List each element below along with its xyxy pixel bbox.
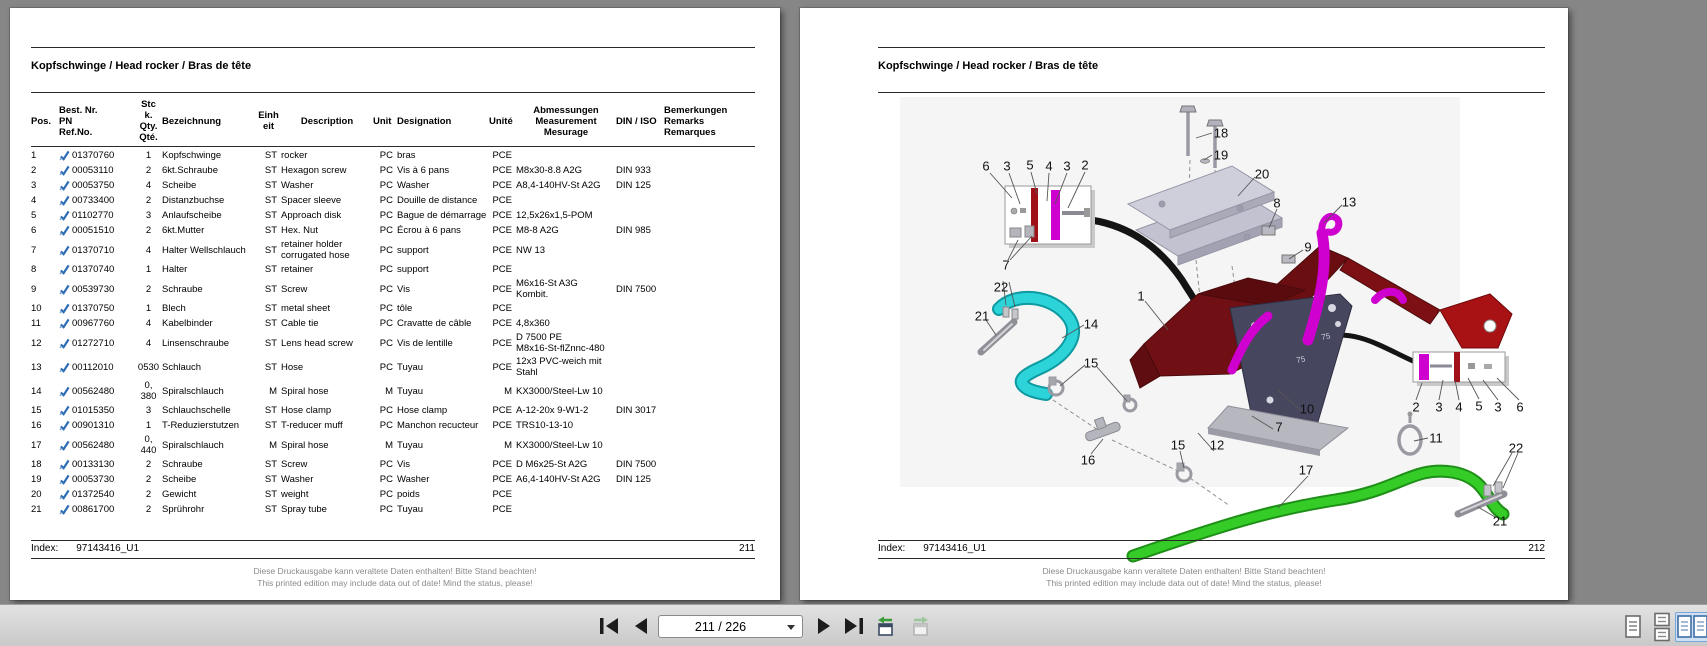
page-number-input[interactable] (658, 615, 803, 638)
cell-qty: 2 (135, 489, 162, 500)
cell-part-number: 01372540 (59, 489, 135, 500)
diagram-callout: 7 (1002, 258, 1009, 273)
header-name-de: Bezeichnung (162, 116, 256, 127)
diagram-callout: 18 (1214, 126, 1228, 141)
disclaimer-de: Diese Druckausgabe kann veraltete Daten … (800, 565, 1568, 577)
cell-name-en: retainer holder corrugated hose (281, 239, 373, 261)
cell-pos: 14 (31, 386, 59, 397)
cell-part-number: 01370710 (59, 245, 135, 256)
cell-name-de: Anlaufscheibe (162, 210, 256, 221)
table-row: 7 01370710 4 Halter Wellschlauch ST reta… (31, 238, 755, 262)
table-row: 20 01372540 2 Gewicht ST weight PC poids… (31, 487, 755, 502)
cell-unit-en: PC (373, 338, 397, 349)
cell-name-fr: Hose clamp (397, 405, 489, 416)
cell-part-number: 00133130 (59, 459, 135, 470)
cell-part-number: 00901310 (59, 420, 135, 431)
pen-annotation-icon[interactable] (59, 180, 70, 191)
cell-qty: 1 (135, 420, 162, 431)
cell-part-number: 01370740 (59, 264, 135, 275)
cell-unit-de: ST (256, 180, 281, 191)
cell-qty: 3 (135, 210, 162, 221)
pen-annotation-icon[interactable] (59, 405, 70, 416)
cell-name-de: Halter (162, 264, 256, 275)
cell-part-number: 01015350 (59, 405, 135, 416)
cell-qty: 4 (135, 338, 162, 349)
right-page: Kopfschwinge / Head rocker / Bras de têt… (800, 8, 1568, 600)
diagram-callout: 2 (1081, 158, 1088, 173)
table-row: 11 00967760 4 Kabelbinder ST Cable tie P… (31, 316, 755, 331)
pen-annotation-icon[interactable] (59, 338, 70, 349)
cell-name-fr: Tuyau (397, 504, 489, 515)
cell-unit-en: PC (373, 225, 397, 236)
cell-name-en: Approach disk (281, 210, 373, 221)
cell-name-de: Sprührohr (162, 504, 256, 515)
header-pn: Best. Nr. PN Ref.No. (59, 105, 135, 138)
cell-unit-en: PC (373, 180, 397, 191)
cell-name-en: Cable tie (281, 318, 373, 329)
previous-view-button[interactable] (872, 613, 898, 639)
cell-pos: 12 (31, 338, 59, 349)
cell-pos: 9 (31, 284, 59, 295)
cell-name-fr: Vis à 6 pans (397, 165, 489, 176)
next-page-button[interactable] (811, 613, 837, 639)
cell-name-fr: Douille de distance (397, 195, 489, 206)
table-row: 21 00861700 2 Sprührohr ST Spray tube PC… (31, 502, 755, 517)
cell-unit-en: M (373, 440, 397, 451)
diagram-callout: 21 (975, 309, 989, 324)
cell-name-fr: Washer (397, 180, 489, 191)
cell-name-en: Spiral hose (281, 386, 373, 397)
previous-view-icon (872, 613, 898, 639)
cell-part-number: 00112010 (59, 362, 135, 373)
diagram-callout: 12 (1210, 438, 1224, 453)
cell-unit-de: ST (256, 165, 281, 176)
diagram-callout: 20 (1255, 167, 1269, 182)
pen-annotation-icon[interactable] (59, 420, 70, 431)
disclaimer-en: This printed edition may include data ou… (10, 577, 780, 589)
cell-unit-de: ST (256, 489, 281, 500)
cell-unit-en: PC (373, 165, 397, 176)
previous-page-icon (628, 613, 654, 639)
cell-unit-de: M (256, 440, 281, 451)
left-page: Kopfschwinge / Head rocker / Bras de têt… (10, 8, 780, 600)
header-qty: Stc k. Qty. Qté. (135, 99, 162, 143)
cell-part-number: 01272710 (59, 338, 135, 349)
cell-dim: A6,4-140HV-St A2G (516, 474, 616, 485)
first-page-button[interactable] (596, 613, 622, 639)
cell-pos: 5 (31, 210, 59, 221)
cell-unit-de: ST (256, 405, 281, 416)
cell-unit-de: ST (256, 195, 281, 206)
cell-name-de: Distanzbuchse (162, 195, 256, 206)
cell-name-en: Spacer sleeve (281, 195, 373, 206)
cell-name-fr: Tuyau (397, 440, 489, 451)
cell-name-de: Scheibe (162, 474, 256, 485)
viewer-toolbar (0, 604, 1707, 646)
cell-unit-de: ST (256, 504, 281, 515)
cell-name-fr: tôle (397, 303, 489, 314)
table-row: 14 00562480 0, 380 Spiralschlauch M Spir… (31, 379, 755, 403)
cell-name-en: rocker (281, 150, 373, 161)
cell-name-en: Screw (281, 284, 373, 295)
cell-dim: D M6x25-St A2G (516, 459, 616, 470)
cell-unit-de: ST (256, 362, 281, 373)
cell-name-en: T-reducer muff (281, 420, 373, 431)
cell-unit-de: ST (256, 225, 281, 236)
pen-annotation-icon[interactable] (59, 195, 70, 206)
table-header-row: Pos. Best. Nr. PN Ref.No. Stc k. Qty. Qt… (31, 98, 755, 147)
pen-annotation-icon[interactable] (59, 440, 70, 451)
diagram-callout: 3 (1435, 400, 1442, 415)
cell-dim: M6x16-St A3G Kombit. (516, 278, 616, 300)
part-number: 00967760 (72, 318, 114, 329)
cell-unit-en: PC (373, 489, 397, 500)
header-dim: Abmessungen Measurement Mesurage (516, 105, 616, 138)
diagram-callout: 4 (1455, 400, 1462, 415)
cell-unit-fr: PCE (489, 362, 516, 373)
part-number: 00562480 (72, 440, 114, 451)
part-number: 00861700 (72, 504, 114, 515)
cell-unit-de: ST (256, 245, 281, 256)
cell-qty: 4 (135, 180, 162, 191)
cell-din: DIN 3017 (616, 405, 664, 416)
diagram-callout: 15 (1084, 356, 1098, 371)
cell-part-number: 00053750 (59, 180, 135, 191)
part-number: 00053110 (72, 165, 114, 176)
cell-unit-fr: PCE (489, 489, 516, 500)
pen-annotation-icon[interactable] (59, 386, 70, 397)
diagram-callout: 5 (1475, 399, 1482, 414)
cell-name-de: Schlauchschelle (162, 405, 256, 416)
pen-annotation-icon[interactable] (59, 318, 70, 329)
cell-name-en: Spray tube (281, 504, 373, 515)
cell-part-number: 01102770 (59, 210, 135, 221)
pen-annotation-icon[interactable] (59, 362, 70, 373)
cell-name-en: Hose clamp (281, 405, 373, 416)
cell-pos: 4 (31, 195, 59, 206)
cell-name-fr: support (397, 245, 489, 256)
single-page-icon (1622, 613, 1644, 641)
cell-unit-de: M (256, 386, 281, 397)
pen-annotation-icon[interactable] (59, 165, 70, 176)
cell-dim: TRS10-13-10 (516, 420, 616, 431)
cell-name-de: Halter Wellschlauch (162, 245, 256, 256)
cell-unit-fr: PCE (489, 165, 516, 176)
cell-unit-de: ST (256, 303, 281, 314)
cell-name-de: Spiralschlauch (162, 386, 256, 397)
cell-unit-en: PC (373, 459, 397, 470)
disclaimer-de: Diese Druckausgabe kann veraltete Daten … (10, 565, 780, 577)
cell-name-en: Hex. Nut (281, 225, 373, 236)
part-number: 01372540 (72, 489, 114, 500)
cell-pos: 7 (31, 245, 59, 256)
cell-pos: 17 (31, 440, 59, 451)
pen-annotation-icon[interactable] (59, 459, 70, 470)
cell-name-de: 6kt.Mutter (162, 225, 256, 236)
cell-qty: 3 (135, 405, 162, 416)
diagram-callout: 17 (1299, 463, 1313, 478)
header-pos: Pos. (31, 116, 59, 127)
table-row: 19 00053730 2 Scheibe ST Washer PC Washe… (31, 472, 755, 487)
header-unit-en: Unit (373, 116, 397, 127)
page-number: 212 (1528, 543, 1545, 554)
cell-unit-fr: PCE (489, 504, 516, 515)
cell-name-fr: poids (397, 489, 489, 500)
cell-qty: 1 (135, 264, 162, 275)
cell-unit-en: PC (373, 420, 397, 431)
cell-unit-fr: M (489, 386, 516, 397)
cell-qty: 2 (135, 165, 162, 176)
cell-unit-fr: PCE (489, 150, 516, 161)
cell-dim: M8x30-8.8 A2G (516, 165, 616, 176)
cell-unit-de: ST (256, 474, 281, 485)
cell-pos: 13 (31, 362, 59, 373)
title-top-rule (31, 47, 755, 48)
cell-unit-en: PC (373, 284, 397, 295)
part-number: 01272710 (72, 338, 114, 349)
part-number: 01370750 (72, 303, 114, 314)
table-row: 3 00053750 4 Scheibe ST Washer PC Washer… (31, 178, 755, 193)
cell-pos: 21 (31, 504, 59, 515)
diagram-callout: 8 (1273, 196, 1280, 211)
cell-part-number: 00562480 (59, 440, 135, 451)
pen-annotation-icon[interactable] (59, 210, 70, 221)
cell-unit-fr: M (489, 440, 516, 451)
index-value: 97143416_U1 (76, 543, 139, 554)
next-view-button[interactable] (908, 613, 934, 639)
page-title: Kopfschwinge / Head rocker / Bras de têt… (31, 60, 251, 72)
cell-name-en: Screw (281, 459, 373, 470)
cell-pos: 1 (31, 150, 59, 161)
cell-qty: 1 (135, 150, 162, 161)
diagram-callout: 19 (1214, 148, 1228, 163)
cell-din: DIN 985 (616, 225, 664, 236)
header-remarks: Bemerkungen Remarks Remarques (664, 105, 755, 138)
diagram-callout: 22 (1509, 441, 1523, 456)
cell-pos: 10 (31, 303, 59, 314)
pen-annotation-icon[interactable] (59, 474, 70, 485)
part-number: 00112010 (72, 362, 114, 373)
part-number: 00733400 (72, 195, 114, 206)
cell-name-de: Spiralschlauch (162, 440, 256, 451)
continuous-view-button[interactable] (1649, 612, 1675, 642)
cell-dim: 12,5x26x1,5-POM (516, 210, 616, 221)
table-row: 2 00053110 2 6kt.Schraube ST Hexagon scr… (31, 163, 755, 178)
part-number: 01102770 (72, 210, 114, 221)
cell-din: DIN 7500 (616, 459, 664, 470)
previous-page-button[interactable] (628, 613, 654, 639)
pen-annotation-icon[interactable] (59, 245, 70, 256)
cell-part-number: 00053730 (59, 474, 135, 485)
cell-unit-fr: PCE (489, 264, 516, 275)
table-row: 12 01272710 4 Linsenschraube ST Lens hea… (31, 331, 755, 355)
cell-unit-fr: PCE (489, 338, 516, 349)
cell-name-fr: Bague de démarrage (397, 210, 489, 221)
dual-page-view-button[interactable] (1675, 612, 1707, 642)
table-row: 1 01370760 1 Kopfschwinge ST rocker PC b… (31, 148, 755, 163)
cell-dim: 12x3 PVC-weich mit Stahl (516, 356, 616, 378)
cell-unit-en: PC (373, 474, 397, 485)
table-row: 13 00112010 0530 Schlauch ST Hose PC Tuy… (31, 355, 755, 379)
cell-qty: 2 (135, 474, 162, 485)
cell-qty: 0530 (135, 362, 162, 373)
diagram-callout: 22 (994, 280, 1008, 295)
cell-name-en: Washer (281, 180, 373, 191)
cell-qty: 0, 380 (135, 380, 162, 402)
diagram-callout: 3 (1494, 400, 1501, 415)
cell-unit-en: PC (373, 303, 397, 314)
last-page-button[interactable] (841, 613, 867, 639)
header-name-fr: Designation (397, 116, 489, 127)
diagram-callout: 3 (1003, 159, 1010, 174)
pen-annotation-icon[interactable] (59, 150, 70, 161)
part-number: 01370740 (72, 264, 114, 275)
cell-unit-fr: PCE (489, 303, 516, 314)
cell-unit-fr: PCE (489, 318, 516, 329)
cell-dim: KX3000/Steel-Lw 10 (516, 440, 616, 451)
pen-annotation-icon[interactable] (59, 264, 70, 275)
cell-unit-en: PC (373, 150, 397, 161)
part-number: 00053730 (72, 474, 114, 485)
cell-name-de: Schraube (162, 459, 256, 470)
cell-unit-de: ST (256, 338, 281, 349)
cell-name-fr: Vis de lentille (397, 338, 489, 349)
index-value: 97143416_U1 (923, 543, 986, 554)
last-page-icon (841, 613, 867, 639)
part-number: 00901310 (72, 420, 114, 431)
next-view-icon (908, 613, 934, 639)
cell-unit-en: PC (373, 195, 397, 206)
cell-pos: 11 (31, 318, 59, 329)
cell-name-en: Hose (281, 362, 373, 373)
cell-unit-fr: PCE (489, 245, 516, 256)
cell-name-de: Scheibe (162, 180, 256, 191)
cell-unit-fr: PCE (489, 405, 516, 416)
table-row: 8 01370740 1 Halter ST retainer PC suppo… (31, 262, 755, 277)
cell-qty: 2 (135, 504, 162, 515)
single-page-view-button[interactable] (1620, 612, 1646, 642)
next-page-icon (811, 613, 837, 639)
dual-pages-icon (1676, 613, 1707, 641)
diagram-callout: 14 (1084, 317, 1098, 332)
cell-part-number: 00733400 (59, 195, 135, 206)
part-number: 01370760 (72, 150, 114, 161)
diagram-callout: 4 (1045, 159, 1052, 174)
cell-name-en: Lens head screw (281, 338, 373, 349)
cell-name-de: Blech (162, 303, 256, 314)
pen-annotation-icon[interactable] (59, 225, 70, 236)
cell-unit-fr: PCE (489, 459, 516, 470)
cell-name-fr: Cravatte de câble (397, 318, 489, 329)
cell-din: DIN 933 (616, 165, 664, 176)
cell-name-de: Kabelbinder (162, 318, 256, 329)
cell-name-fr: Manchon recucteur (397, 420, 489, 431)
cell-name-de: 6kt.Schraube (162, 165, 256, 176)
cell-unit-fr: PCE (489, 474, 516, 485)
page-number: 211 (739, 543, 755, 554)
cell-unit-en: PC (373, 245, 397, 256)
cell-part-number: 00539730 (59, 284, 135, 295)
cell-unit-fr: PCE (489, 225, 516, 236)
cell-unit-fr: PCE (489, 420, 516, 431)
cell-name-de: Schraube (162, 284, 256, 295)
cell-part-number: 01370760 (59, 150, 135, 161)
cell-name-de: Schlauch (162, 362, 256, 373)
header-din: DIN / ISO (616, 116, 664, 127)
cell-unit-de: ST (256, 318, 281, 329)
continuous-pages-icon (1651, 612, 1673, 642)
pen-annotation-icon[interactable] (59, 303, 70, 314)
cell-pos: 6 (31, 225, 59, 236)
cell-name-en: weight (281, 489, 373, 500)
cell-pos: 3 (31, 180, 59, 191)
diagram-callout: 15 (1171, 438, 1185, 453)
diagram-callout: 7 (1275, 420, 1282, 435)
cell-qty: 4 (135, 245, 162, 256)
cell-part-number: 00562480 (59, 386, 135, 397)
cell-din: DIN 125 (616, 474, 664, 485)
diagram-callout: 13 (1342, 195, 1356, 210)
part-number: 00053750 (72, 180, 114, 191)
table-row: 6 00051510 2 6kt.Mutter ST Hex. Nut PC É… (31, 223, 755, 238)
cell-qty: 2 (135, 225, 162, 236)
cell-part-number: 01370750 (59, 303, 135, 314)
cell-dim: M8-8 A2G (516, 225, 616, 236)
cell-name-fr: Vis (397, 459, 489, 470)
pdf-viewer: Kopfschwinge / Head rocker / Bras de têt… (0, 0, 1707, 646)
cell-qty: 1 (135, 303, 162, 314)
diagram-callout: 21 (1493, 514, 1507, 529)
cell-name-en: Spiral hose (281, 440, 373, 451)
cell-part-number: 00053110 (59, 165, 135, 176)
cell-qty: 0, 440 (135, 434, 162, 456)
cell-qty: 2 (135, 459, 162, 470)
cell-qty: 4 (135, 318, 162, 329)
cell-dim: NW 13 (516, 245, 616, 256)
cell-dim: A8,4-140HV-St A2G (516, 180, 616, 191)
cell-unit-fr: PCE (489, 210, 516, 221)
table-row: 16 00901310 1 T-Reduzierstutzen ST T-red… (31, 418, 755, 433)
header-name-en: Description (281, 116, 373, 127)
cell-pos: 20 (31, 489, 59, 500)
cell-name-fr: support (397, 264, 489, 275)
cell-part-number: 00967760 (59, 318, 135, 329)
pen-annotation-icon[interactable] (59, 489, 70, 500)
pen-annotation-icon[interactable] (59, 504, 70, 515)
cell-unit-en: PC (373, 362, 397, 373)
diagram-callout: 9 (1304, 240, 1311, 255)
index-label: Index: (31, 543, 58, 554)
cell-pos: 18 (31, 459, 59, 470)
first-page-icon (596, 613, 622, 639)
cell-name-de: Linsenschraube (162, 338, 256, 349)
cell-name-en: Hexagon screw (281, 165, 373, 176)
cell-dim: D 7500 PE M8x16-St-flZnnc-480 (516, 332, 616, 354)
cell-name-en: Washer (281, 474, 373, 485)
cell-name-fr: Tuyau (397, 386, 489, 397)
cell-unit-en: PC (373, 210, 397, 221)
cell-part-number: 00861700 (59, 504, 135, 515)
table-row: 17 00562480 0, 440 Spiralschlauch M Spir… (31, 433, 755, 457)
table-row: 15 01015350 3 Schlauchschelle ST Hose cl… (31, 403, 755, 418)
pen-annotation-icon[interactable] (59, 284, 70, 295)
part-number: 00562480 (72, 386, 114, 397)
cell-name-fr: Écrou à 6 pans (397, 225, 489, 236)
cell-unit-en: PC (373, 318, 397, 329)
parts-table: Pos. Best. Nr. PN Ref.No. Stc k. Qty. Qt… (31, 98, 755, 517)
index-label: Index: (878, 543, 905, 554)
diagram-callout: 6 (982, 159, 989, 174)
